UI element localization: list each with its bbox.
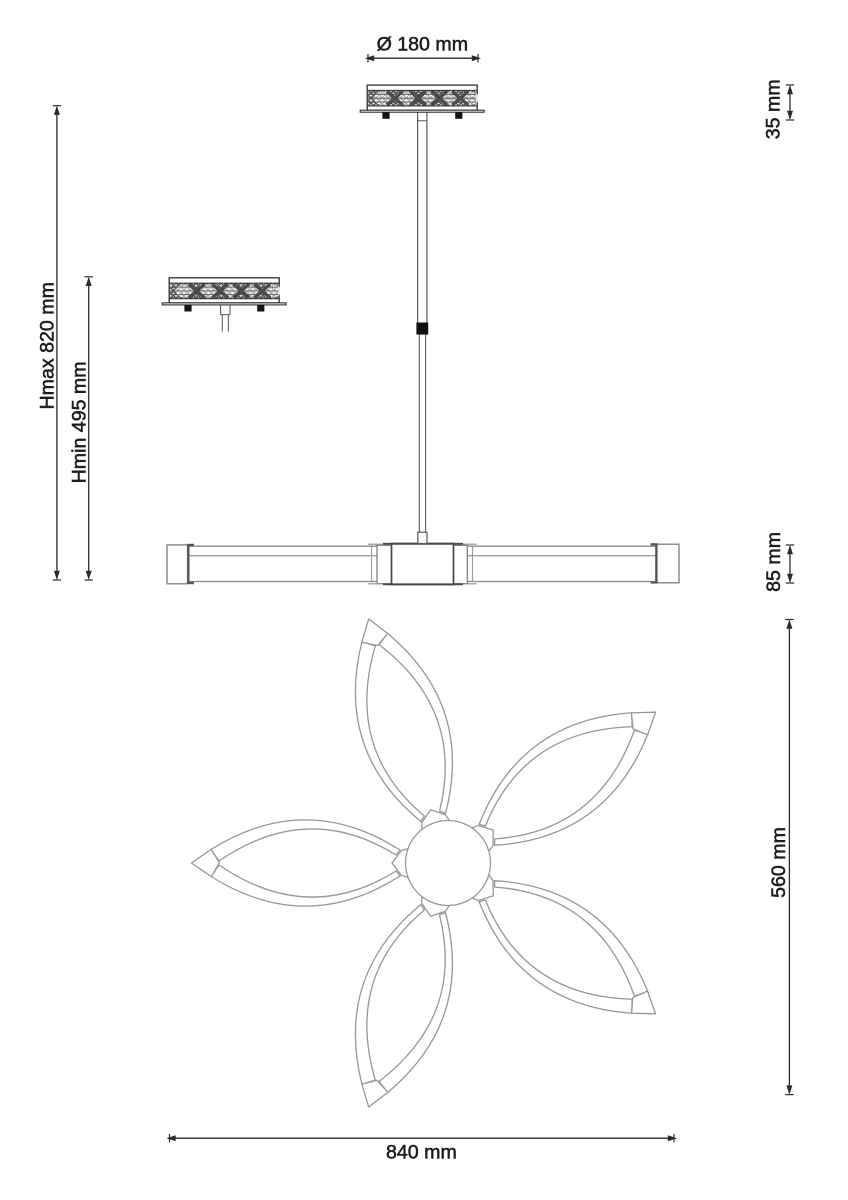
svg-text:840 mm: 840 mm	[386, 1142, 457, 1164]
svg-text:85 mm: 85 mm	[763, 532, 785, 592]
svg-text:560 mm: 560 mm	[768, 827, 790, 898]
svg-text:Hmax 820 mm: Hmax 820 mm	[37, 282, 59, 409]
svg-text:35 mm: 35 mm	[763, 79, 785, 139]
svg-text:Ø 180 mm: Ø 180 mm	[377, 34, 468, 56]
svg-text:Hmin 495 mm: Hmin 495 mm	[69, 361, 91, 483]
